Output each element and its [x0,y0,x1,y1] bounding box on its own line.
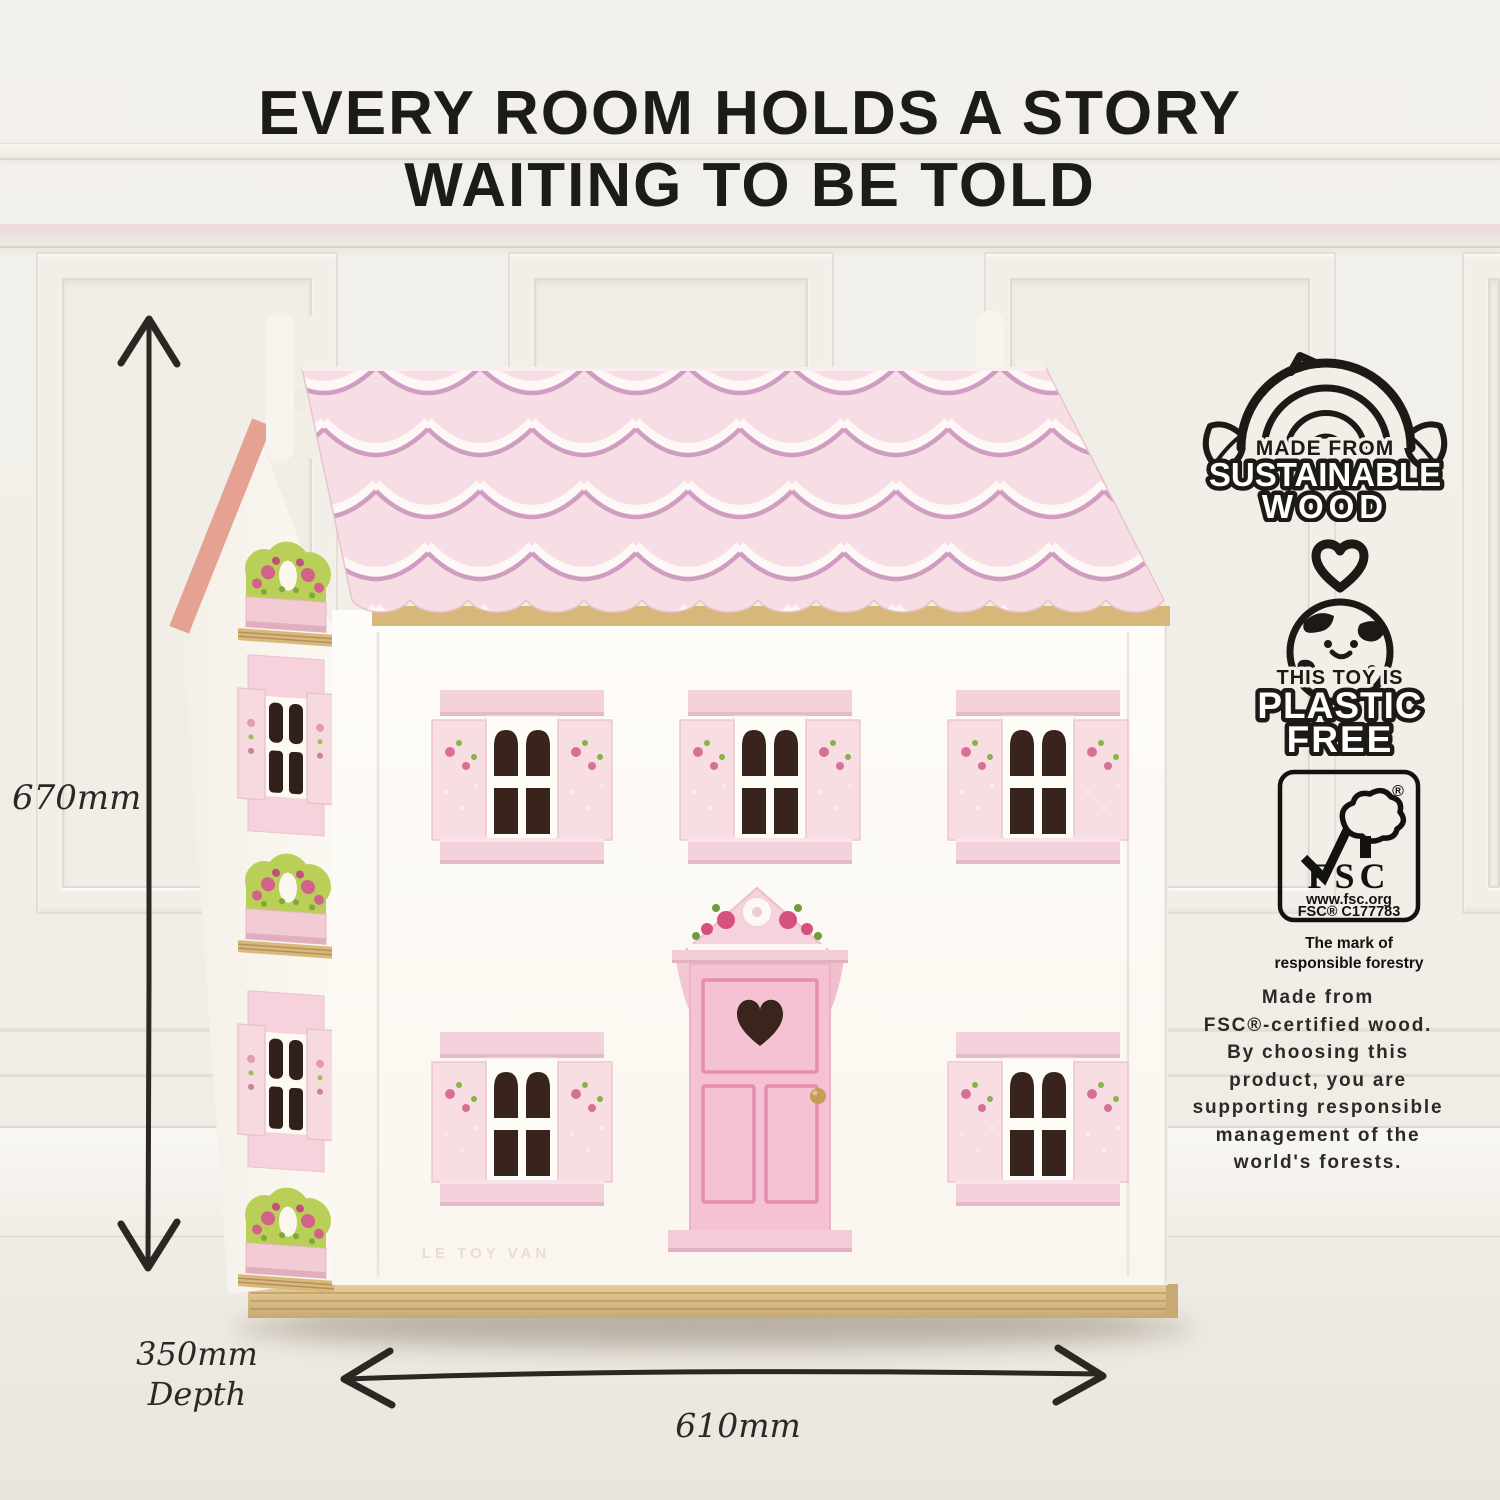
brand-watermark: LE TOY VAN [422,1245,550,1262]
fsc-registered-mark: ® [1392,783,1404,800]
fsc-description: Made from FSC®-certified wood. By choosi… [1158,984,1478,1177]
headline-line-2: WAITING TO BE TOLD [0,150,1500,222]
width-dimension-label: 610mm [628,1406,848,1445]
depth-value: 350mm [118,1334,276,1374]
depth-dimension-label: 350mm Depth [118,1334,276,1414]
description-line: product, you are [1158,1067,1478,1095]
door-knob [810,1088,826,1104]
heart-icon [1316,544,1364,588]
fsc-caption-line-1: The mark of [1305,935,1394,952]
description-line: FSC®-certified wood. [1158,1012,1478,1040]
side-window-lower [238,990,334,1173]
roof [302,368,1164,612]
width-arrow [344,1348,1103,1405]
headline-line-1: EVERY ROOM HOLDS A STORY [0,78,1500,150]
fsc-caption-line-2: responsible forestry [1274,955,1423,972]
description-line: supporting responsible [1158,1094,1478,1122]
product-infographic: EVERY ROOM HOLDS A STORY WAITING TO BE T… [0,0,1500,1500]
description-line: management of the [1158,1122,1478,1150]
sustainable-wood-badge: MADE FROM SUSTAINABLE WOOD [1196,330,1454,522]
description-line: By choosing this [1158,1039,1478,1067]
fsc-badge: ® FSC www.fsc.org FSC® C177783 The mark … [1270,766,1428,976]
door-sill-shade [668,1248,852,1252]
plastic-free-badge: THIS TOY IS PLASTIC FREE [1242,530,1438,756]
description-line: Made from [1158,984,1478,1012]
headline: EVERY ROOM HOLDS A STORY WAITING TO BE T… [0,78,1500,222]
height-dimension-label: 670mm [12,778,140,818]
depth-word: Depth [118,1374,276,1414]
description-line: world's forests. [1158,1149,1478,1177]
front-door [690,964,830,1232]
sustainable-badge-bottom-text: WOOD [1262,488,1388,522]
side-window-upper [238,654,334,837]
fsc-name: FSC [1307,856,1390,896]
fsc-license: FSC® C177783 [1298,904,1401,920]
plastic-free-bottom-text: FREE [1287,719,1394,756]
